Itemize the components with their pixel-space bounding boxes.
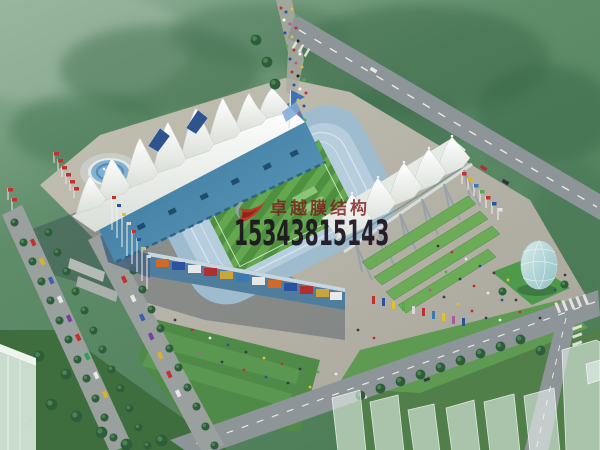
watermark-phone-number: 15343815143 bbox=[234, 217, 389, 252]
stadium-aerial-rendering: 卓越膜结构 15343815143 bbox=[0, 0, 600, 450]
corner-building bbox=[0, 344, 36, 450]
